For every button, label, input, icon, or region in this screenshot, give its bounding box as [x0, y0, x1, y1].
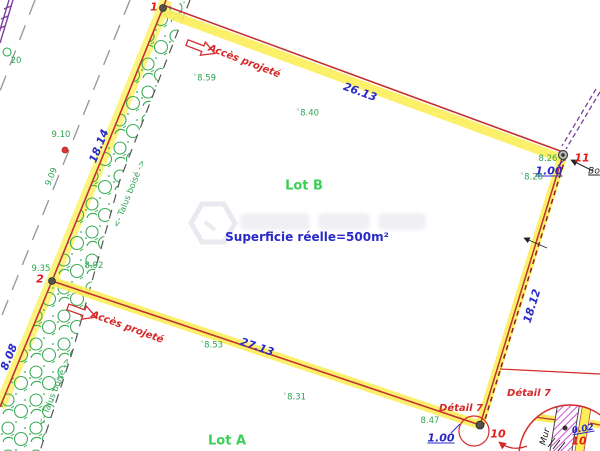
- property-limit-dashed: [562, 89, 600, 149]
- middle-boundary: [52, 281, 480, 425]
- detail-leader-line: [500, 369, 600, 374]
- point-1-marker: [160, 5, 167, 12]
- borne-leader-arrow: [571, 160, 593, 171]
- fence-line: [0, 0, 13, 43]
- hedge-talus-boise: [0, 0, 190, 451]
- plan-drawing: [0, 0, 600, 451]
- hedge-edge-dashed-line: [40, 0, 190, 451]
- north-boundary: [163, 5, 563, 159]
- access-arrow-top: [184, 36, 217, 60]
- point-2-marker: [49, 278, 56, 285]
- watermark-logo: [191, 204, 426, 242]
- detail-7-circle: [519, 402, 600, 451]
- east-boundary: [480, 155, 566, 426]
- tree-symbol: [3, 48, 11, 56]
- spot-9-10-marker: [62, 147, 68, 153]
- west-boundary-line: [0, 0, 166, 407]
- survey-division-plan: 26.1327.1318.1218.148.081.001.000.028.59…: [0, 0, 600, 451]
- point-10-marker: [476, 421, 484, 429]
- detail-curved-arrow: [499, 442, 527, 448]
